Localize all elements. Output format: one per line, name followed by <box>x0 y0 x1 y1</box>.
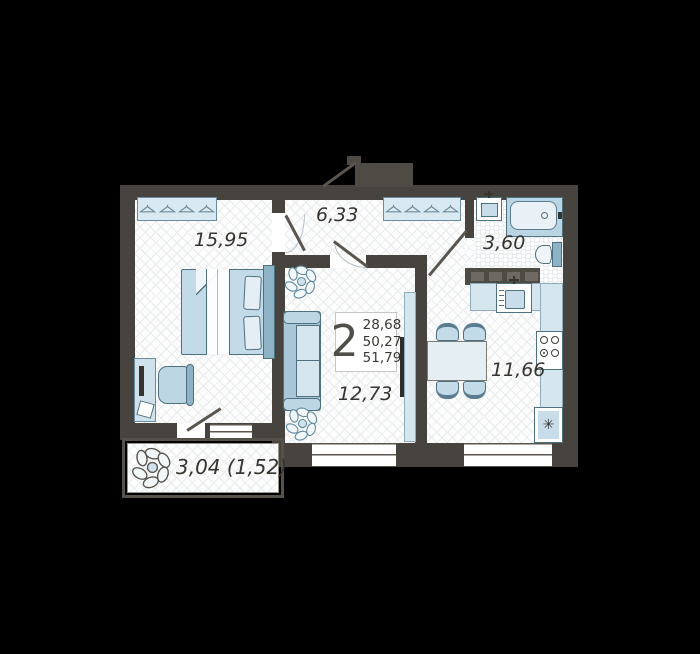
snowflake-icon: ✳ <box>543 417 555 433</box>
chair <box>463 323 486 341</box>
bedroom-wardrobe <box>137 197 217 221</box>
faucet-icon <box>509 279 519 281</box>
bathtub-basin <box>510 201 557 230</box>
hanger-icon <box>442 204 459 214</box>
area-value: 50,27 <box>363 334 402 351</box>
balcony-area-label: 3,04 (1,52) <box>176 456 287 478</box>
sink-basin <box>481 203 498 217</box>
sofa-seat <box>296 325 320 397</box>
bathroom-area-label: 3,60 <box>483 233 525 254</box>
living-area-label: 12,73 <box>338 384 392 405</box>
hallway-wardrobe <box>383 197 461 221</box>
bathtub-faucet-icon <box>558 212 562 219</box>
bathroom-sink <box>476 197 502 221</box>
hanger-icon <box>404 204 421 214</box>
dining-table <box>427 341 487 381</box>
cabinet-door <box>471 272 484 281</box>
pillow <box>243 276 262 311</box>
entrance-door-leaf <box>322 162 356 188</box>
wall-partition-kitchen <box>415 255 427 443</box>
apartment-summary: 2 28,68 50,27 51,79 <box>335 312 397 372</box>
hanger-icon <box>159 204 176 214</box>
desk-chair-back <box>186 364 194 406</box>
living-area-value: 28,68 <box>363 317 402 334</box>
bed-headboard <box>263 265 275 359</box>
plant-icon <box>284 264 320 300</box>
hanger-icon <box>139 204 156 214</box>
kitchen-area-label: 11,66 <box>491 360 545 381</box>
pillow <box>243 316 262 351</box>
tv-console <box>404 292 416 442</box>
burner-icon <box>540 349 548 357</box>
bathtub-drain <box>541 212 548 219</box>
bed-throw-crease <box>217 269 218 355</box>
chair <box>436 323 459 341</box>
chair <box>463 381 486 399</box>
burner-icon <box>551 349 559 357</box>
fridge: ✳ <box>534 407 563 443</box>
hanger-icon <box>385 204 402 214</box>
wall-right <box>563 185 578 467</box>
burner-icon <box>551 336 559 344</box>
floor-plan: 15,95 6,33 3,60 <box>0 0 700 654</box>
hanger-icon <box>198 204 215 214</box>
dish-rack <box>499 290 504 307</box>
sofa-cushion-divider <box>296 360 320 361</box>
faucet-icon <box>484 193 493 195</box>
hanger-icon <box>178 204 195 214</box>
bedroom-door-opening <box>272 213 285 252</box>
plant-icon <box>285 406 321 442</box>
chair <box>436 381 459 399</box>
burner-dot <box>543 352 545 354</box>
kitchen-window <box>464 443 552 467</box>
toilet-tank <box>552 242 562 267</box>
bedroom-area-label: 15,95 <box>194 230 248 251</box>
bathtub <box>506 197 563 237</box>
rooms-count: 2 <box>331 322 359 362</box>
plant-icon <box>131 446 175 490</box>
burner-icon <box>540 336 548 344</box>
area-values: 28,68 50,27 51,79 <box>363 317 402 367</box>
living-window <box>312 443 396 467</box>
total-area-value: 51,79 <box>363 350 402 367</box>
bedroom-balcony-window <box>210 424 252 439</box>
hanger-icon <box>423 204 440 214</box>
hallway-area-label: 6,33 <box>316 205 358 226</box>
entrance-vestibule-block <box>355 163 413 187</box>
wall-left <box>120 185 135 440</box>
monitor-icon <box>139 366 144 396</box>
cabinet-door <box>489 272 502 281</box>
cabinet-door <box>525 272 538 281</box>
sofa-armrest <box>283 311 321 324</box>
toilet-bowl <box>535 245 552 264</box>
bed-throw <box>206 269 230 355</box>
kitchen-sink <box>496 283 532 313</box>
sink-basin <box>505 290 525 309</box>
